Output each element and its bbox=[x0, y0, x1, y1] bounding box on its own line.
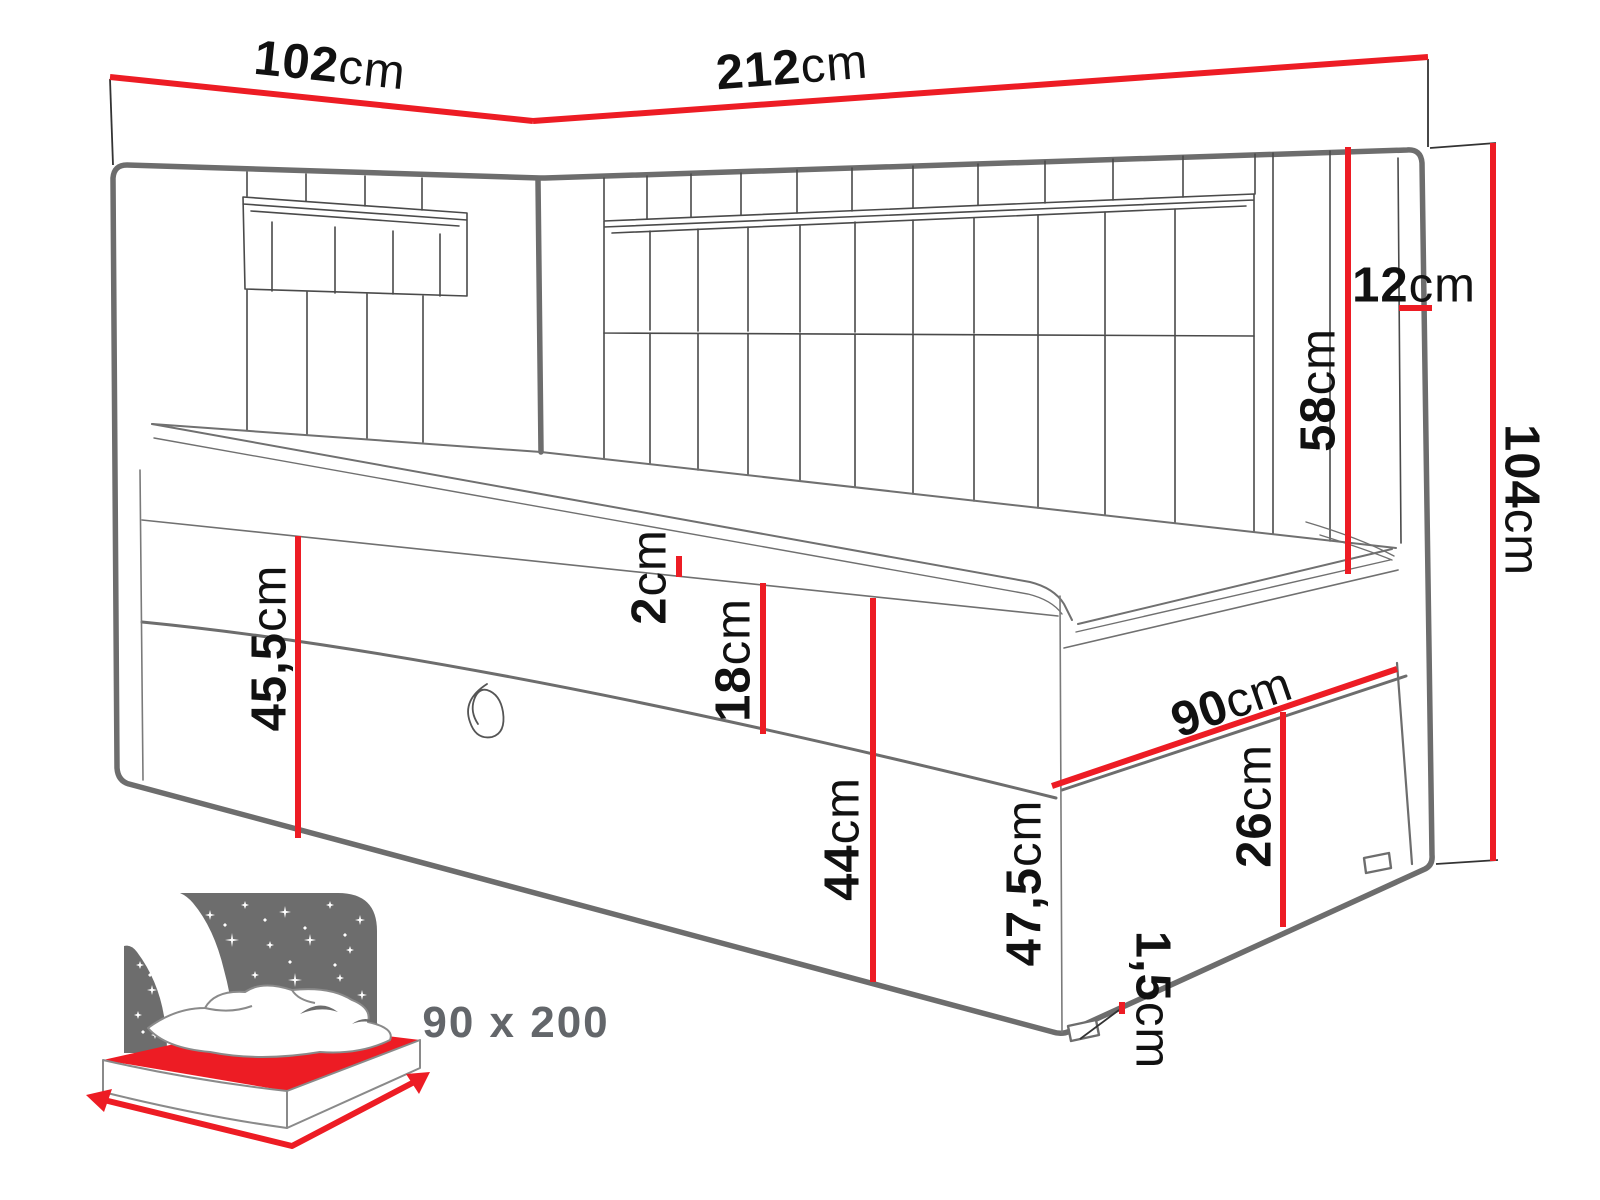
right-foot bbox=[1364, 853, 1391, 873]
left-headboard-lower-seams bbox=[247, 290, 423, 442]
ext-104-top bbox=[1430, 143, 1496, 148]
dim-label-side-panel: 47,5cm bbox=[1001, 800, 1050, 967]
diagram-canvas: 102cm 212cm 104cm 58cm 12cm 45,5cm 2cm 1… bbox=[0, 0, 1600, 1200]
bed-line-art bbox=[0, 0, 1600, 1200]
front-foot bbox=[1068, 1020, 1099, 1041]
dim-label-headboard-depth: 12cm bbox=[1352, 262, 1476, 311]
mattress-piping-right bbox=[1076, 560, 1390, 632]
extension-lines bbox=[110, 59, 1498, 1039]
left-headboard-shelf bbox=[243, 197, 467, 296]
headboard-corner-junction bbox=[538, 180, 541, 452]
headboard-inner-corner-line bbox=[1398, 158, 1401, 543]
ext-102-left bbox=[110, 79, 113, 165]
back-headboard-lower-seams bbox=[604, 333, 1254, 532]
inset-mattress-size-label: 90 x 200 bbox=[422, 998, 609, 1048]
dim-label-upper-box: 18cm bbox=[710, 598, 759, 722]
left-headboard-shelf-seams bbox=[272, 222, 440, 296]
dim-label-back-width: 212cm bbox=[714, 38, 869, 99]
left-inner-corner-edge bbox=[140, 470, 143, 780]
dim-label-topper: 2cm bbox=[626, 529, 675, 625]
dim-label-side-drawer: 26cm bbox=[1231, 744, 1280, 868]
dim-label-left-front-height: 45,5cm bbox=[246, 565, 295, 732]
dim-label-total-height: 104cm bbox=[1497, 424, 1546, 576]
dim-label-front-panel: 44cm bbox=[819, 777, 868, 901]
dim-label-headboard-height: 58cm bbox=[1295, 328, 1344, 452]
ext-104-bottom bbox=[1436, 860, 1498, 864]
drawer-handle-icon bbox=[468, 684, 503, 737]
inset-bed-icon bbox=[86, 893, 430, 1146]
mattress-bottom-seam-right bbox=[1064, 570, 1398, 648]
dim-label-leg-height: 1,5cm bbox=[1128, 931, 1177, 1069]
front-right-corner-edge bbox=[1060, 596, 1062, 1032]
dim-line-212 bbox=[533, 57, 1428, 121]
mattress-lines bbox=[142, 424, 1398, 648]
right-face-back-edge bbox=[1397, 663, 1412, 864]
mattress-right-edge bbox=[1078, 549, 1392, 624]
back-headboard-shelf bbox=[604, 194, 1254, 336]
